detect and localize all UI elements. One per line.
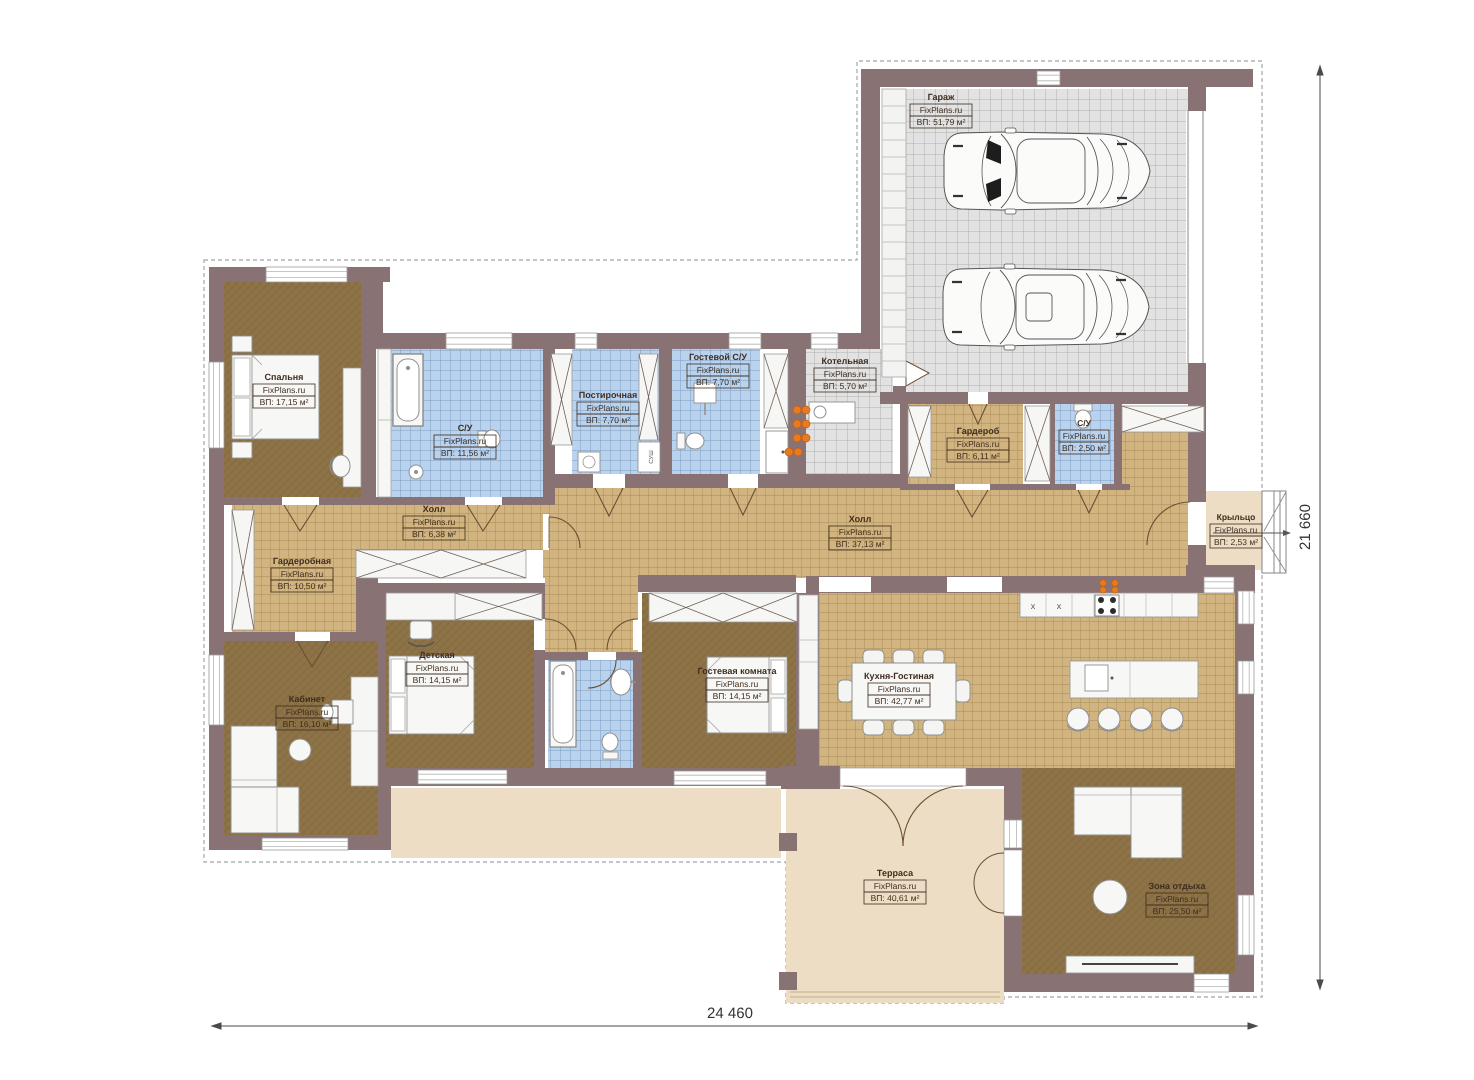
svg-text:С/У: С/У [458,423,473,433]
svg-text:ВП: 7,70 м²: ВП: 7,70 м² [586,415,630,425]
svg-text:ВП: 42,77 м²: ВП: 42,77 м² [875,696,924,706]
svg-text:ВП: 7,70 м²: ВП: 7,70 м² [696,377,740,387]
svg-text:FixPlans.ru: FixPlans.ru [920,105,963,115]
svg-text:Терраса: Терраса [877,868,914,878]
svg-text:ВП: 6,11 м²: ВП: 6,11 м² [956,451,1000,461]
svg-text:Гардероб: Гардероб [957,426,1000,436]
svg-text:FixPlans.ru: FixPlans.ru [281,569,324,579]
svg-text:Гардеробная: Гардеробная [273,556,331,566]
svg-text:Кабинет: Кабинет [289,694,326,704]
svg-text:ВП: 17,15 м²: ВП: 17,15 м² [260,397,309,407]
svg-text:Гараж: Гараж [928,92,955,102]
svg-text:Холл: Холл [849,514,872,524]
svg-text:Холл: Холл [423,504,446,514]
svg-text:Детская: Детская [419,650,454,660]
svg-text:Зона отдыха: Зона отдыха [1148,881,1206,891]
svg-text:ВП: 2,50 м²: ВП: 2,50 м² [1062,443,1106,453]
svg-text:FixPlans.ru: FixPlans.ru [839,527,882,537]
svg-text:ВП: 5,70 м²: ВП: 5,70 м² [823,381,867,391]
svg-text:FixPlans.ru: FixPlans.ru [1156,894,1199,904]
svg-text:ВП: 37,13 м²: ВП: 37,13 м² [836,539,885,549]
svg-text:ВП: 14,15 м²: ВП: 14,15 м² [413,675,462,685]
svg-text:ВП: 25,50 м²: ВП: 25,50 м² [1153,906,1202,916]
svg-text:ВП: 6,38 м²: ВП: 6,38 м² [412,529,456,539]
svg-text:FixPlans.ru: FixPlans.ru [874,881,917,891]
svg-text:FixPlans.ru: FixPlans.ru [444,436,487,446]
svg-text:Постирочная: Постирочная [579,390,637,400]
svg-text:FixPlans.ru: FixPlans.ru [878,684,921,694]
svg-text:ВП: 11,56 м²: ВП: 11,56 м² [441,448,489,458]
svg-text:x: x [1031,601,1036,611]
svg-text:FixPlans.ru: FixPlans.ru [824,369,867,379]
svg-text:Гостевой С/У: Гостевой С/У [689,352,747,362]
svg-text:ВП: 10,50 м²: ВП: 10,50 м² [278,581,327,591]
svg-text:FixPlans.ru: FixPlans.ru [697,365,740,375]
svg-text:x: x [1057,601,1062,611]
svg-text:С/У: С/У [1077,418,1092,428]
svg-text:FixPlans.ru: FixPlans.ru [716,679,759,689]
svg-text:Спальня: Спальня [265,372,304,382]
svg-text:FixPlans.ru: FixPlans.ru [1215,525,1258,535]
svg-text:FixPlans.ru: FixPlans.ru [1063,431,1106,441]
svg-text:FixPlans.ru: FixPlans.ru [416,663,459,673]
svg-text:FixPlans.ru: FixPlans.ru [263,385,306,395]
svg-text:ВП: 14,15 м²: ВП: 14,15 м² [713,691,762,701]
svg-text:Кухня-Гостиная: Кухня-Гостиная [864,671,934,681]
svg-text:Гостевая комната: Гостевая комната [698,666,778,676]
svg-text:ВП: 16,10 м²: ВП: 16,10 м² [283,719,332,729]
svg-text:ВП: 51,79 м²: ВП: 51,79 м² [917,117,966,127]
svg-text:СУШ: СУШ [648,450,655,463]
svg-text:FixPlans.ru: FixPlans.ru [587,403,630,413]
svg-text:Котельная: Котельная [821,356,868,366]
svg-text:ВП: 40,61 м²: ВП: 40,61 м² [871,893,920,903]
svg-text:21 660: 21 660 [1297,504,1314,550]
svg-text:ВП: 2,53 м²: ВП: 2,53 м² [1214,537,1258,547]
svg-text:FixPlans.ru: FixPlans.ru [957,439,1000,449]
svg-text:Крыльцо: Крыльцо [1217,512,1256,522]
svg-text:FixPlans.ru: FixPlans.ru [413,517,456,527]
svg-text:24 460: 24 460 [707,1005,753,1022]
svg-text:FixPlans.ru: FixPlans.ru [286,707,329,717]
